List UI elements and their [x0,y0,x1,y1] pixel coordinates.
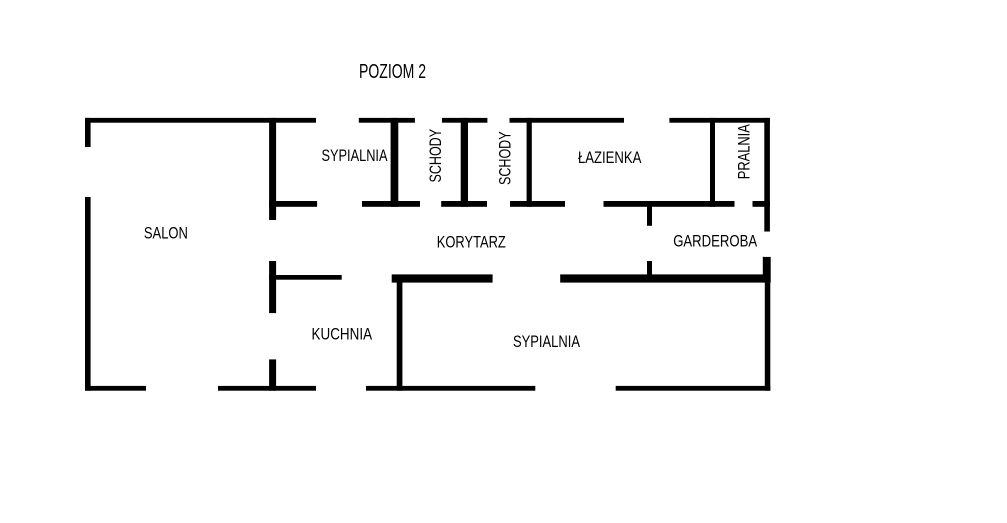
svg-text:SYPIALNIA: SYPIALNIA [322,147,388,165]
svg-text:POZIOM 2: POZIOM 2 [359,60,426,83]
svg-text:PRALNIA: PRALNIA [736,124,754,179]
svg-text:KUCHNIA: KUCHNIA [312,326,373,344]
svg-text:SCHODY: SCHODY [427,129,445,183]
svg-text:SYPIALNIA: SYPIALNIA [513,333,580,351]
svg-text:SALON: SALON [144,225,188,243]
svg-text:SCHODY: SCHODY [497,131,515,185]
svg-text:GARDEROBA: GARDEROBA [673,232,757,250]
svg-text:KORYTARZ: KORYTARZ [437,234,506,252]
svg-text:ŁAZIENKA: ŁAZIENKA [578,149,642,167]
